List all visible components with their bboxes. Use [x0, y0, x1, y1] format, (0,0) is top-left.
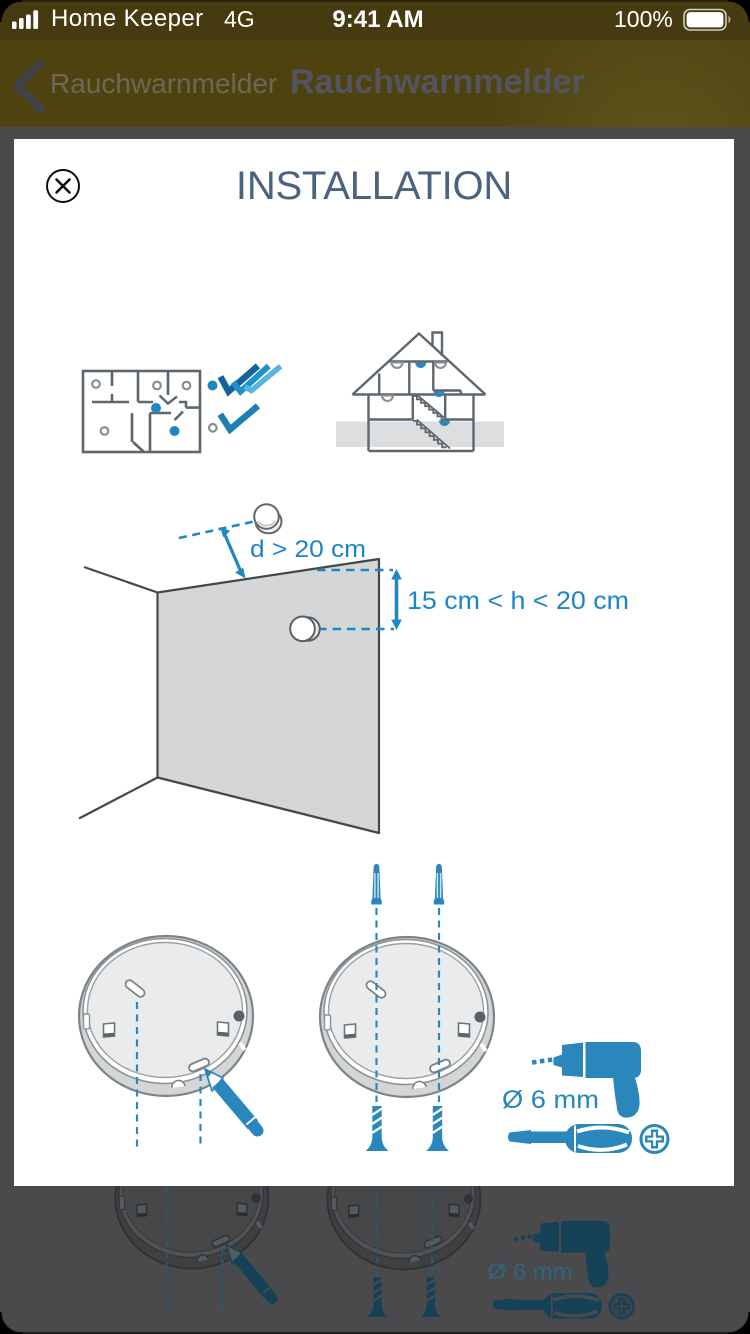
svg-text:15 cm < h < 20 cm: 15 cm < h < 20 cm [407, 587, 629, 615]
svg-text:Ø 6 mm: Ø 6 mm [502, 1086, 599, 1114]
svg-text:d > 20 cm: d > 20 cm [250, 536, 366, 563]
svg-text:Ø 6 mm: Ø 6 mm [488, 1259, 573, 1284]
